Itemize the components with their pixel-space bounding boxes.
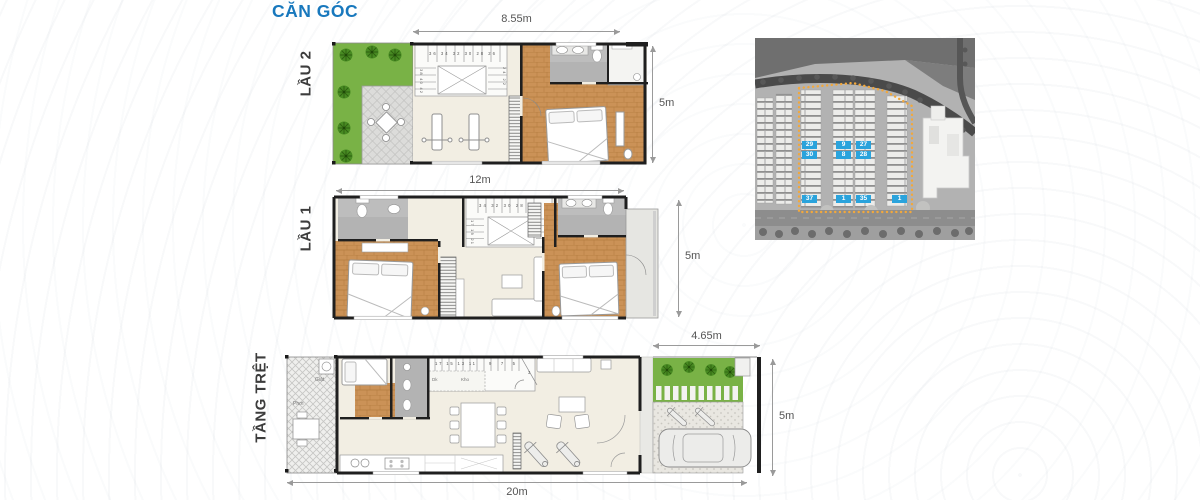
dim-line-lau1-width	[336, 190, 624, 191]
label-dk: Dk	[432, 377, 438, 382]
unit-label: 35	[856, 195, 871, 203]
sink-icon	[573, 47, 584, 54]
washer-icon	[319, 359, 334, 374]
dim-label-lau2-width: 8.55m	[413, 13, 620, 25]
dim-line-tret-depth	[772, 359, 773, 476]
dim-line-tret-length	[287, 482, 747, 483]
label-dry: Phơi	[293, 401, 304, 407]
garden-terrace	[332, 42, 414, 165]
unit-label: 9	[836, 141, 851, 149]
coffee-table	[559, 397, 585, 412]
floorplan-tang-tret: Giặt Phơi 17 15 13	[285, 355, 762, 475]
bathroom-right	[558, 197, 626, 237]
bench	[616, 112, 624, 146]
bed-icon	[559, 262, 619, 316]
sink-icon	[566, 200, 576, 207]
unit-label: 37	[802, 195, 817, 203]
unit-label: 1	[892, 195, 907, 203]
unit-label: 27	[856, 141, 871, 149]
dining-table	[461, 403, 495, 447]
toilet-icon	[357, 205, 367, 218]
toilet-icon	[593, 50, 602, 62]
sink-icon	[388, 205, 400, 214]
dining-area	[450, 403, 506, 447]
stair-numbers-left: 17 19 21	[470, 220, 475, 245]
floorplan-lau2: 36 34 32 30 28 26 38 40 42 24 22	[332, 42, 648, 165]
gate-post	[735, 358, 750, 376]
floorplan-lau1: 34 32 30 28 26 17 19 21 24 22	[332, 195, 660, 320]
sink-icon	[404, 364, 411, 371]
dim-label-tret-front: 4.65m	[653, 330, 760, 342]
bathroom	[395, 357, 427, 417]
floorplan-marketing-sheet: CĂN GÓC LẦU 2 8.55m 5m	[0, 0, 1200, 500]
sink-icon	[557, 47, 568, 54]
wardrobe	[528, 203, 541, 237]
dim-line-lau1-depth	[678, 200, 679, 317]
apartment-building	[923, 106, 969, 198]
porch-step	[640, 357, 653, 473]
label-storage: Kho	[461, 377, 470, 382]
laundry-yard: Giặt Phơi	[285, 355, 338, 473]
car-icon	[659, 429, 751, 467]
staircase: 36 34 32 30 28 26 38 40 42 24 22	[415, 44, 507, 96]
unit-label: 8	[836, 151, 851, 159]
toilet-icon	[403, 380, 411, 391]
wardrobe	[440, 257, 456, 318]
dim-label-tret-length: 20m	[287, 486, 747, 498]
unit-label: 30	[802, 151, 817, 159]
dim-label-lau1-width: 12m	[336, 174, 624, 186]
table-icon	[293, 419, 319, 439]
stair-numbers-left: 38 40 42	[419, 69, 424, 94]
bathroom	[550, 44, 608, 82]
unit-label: 1	[836, 195, 851, 203]
site-location-map: 29 30 37 9 8 1 27 28 35 1	[755, 38, 975, 240]
balcony	[626, 209, 658, 318]
dim-label-lau2-depth: 5m	[659, 97, 674, 109]
sink-icon	[582, 200, 592, 207]
staircase: 17 15 13 11 9 7 5 3 Dk Kho	[429, 357, 537, 391]
sofa-icon	[537, 358, 591, 372]
partition-screen	[513, 433, 521, 469]
dim-line-tret-front	[653, 345, 760, 346]
page-title: CĂN GÓC	[272, 1, 358, 22]
floor-label-lau2: LẦU 2	[293, 38, 319, 108]
bed-icon	[546, 106, 609, 163]
bed-icon	[347, 260, 413, 319]
front-yard	[653, 358, 751, 473]
unit-label: 28	[856, 151, 871, 159]
toilet-icon	[604, 203, 613, 215]
unit-label: 29	[802, 141, 817, 149]
dim-label-tret-depth: 5m	[779, 410, 794, 422]
stair-numbers-left-run: 17 15 13 11	[435, 361, 476, 366]
bed-icon	[342, 359, 387, 385]
bedroom-left	[334, 241, 438, 319]
kitchen	[340, 455, 503, 472]
wc-room	[608, 44, 645, 85]
cabinet	[456, 279, 464, 318]
dim-label-lau1-depth: 5m	[685, 250, 700, 262]
floor-label-lau1: LẦU 1	[293, 193, 319, 263]
floor-label-tang-tret: TẦNG TRỆT	[248, 350, 274, 445]
bathroom-left	[338, 197, 408, 241]
dim-line-lau2-depth	[652, 46, 653, 163]
label-wash: Giặt	[315, 377, 325, 383]
dim-line-lau2-width	[413, 31, 620, 32]
site-map-aerial	[755, 38, 975, 240]
